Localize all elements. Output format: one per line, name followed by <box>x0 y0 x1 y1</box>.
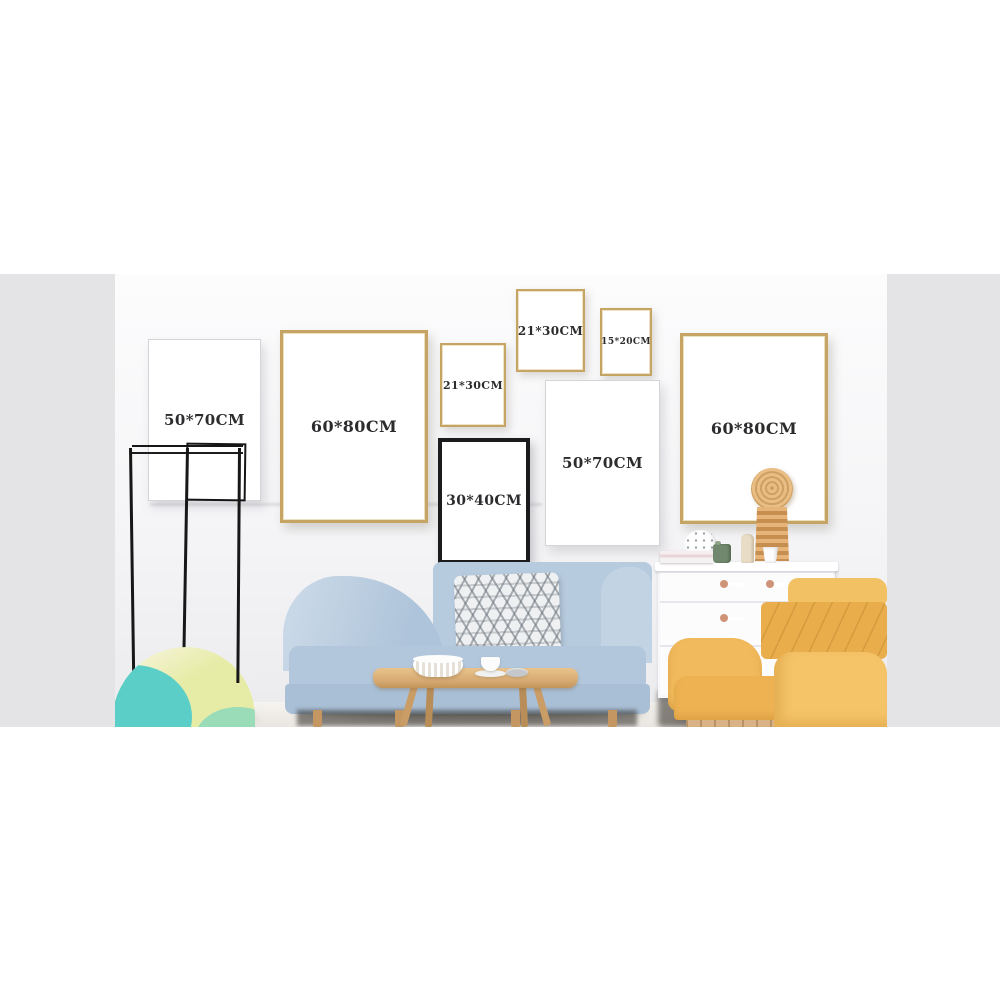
photo-side-band-left <box>0 274 115 727</box>
beige-vase <box>741 534 754 563</box>
table-leg <box>400 685 418 726</box>
table-leg <box>533 685 551 726</box>
frame-size-label: 21*30CM <box>518 324 583 338</box>
frame-size-label: 30*40CM <box>446 493 522 509</box>
wall-frame-50x70-center: 50*70CM <box>545 380 660 546</box>
table-leg <box>519 686 528 727</box>
frame-size-label: 60*80CM <box>711 419 797 438</box>
sofa-leg <box>313 710 322 727</box>
frame-size-label: 15*20CM <box>601 337 651 347</box>
wall-frame-15x20: 15*20CM <box>600 308 652 376</box>
wall-frame-60x80-left: 60*80CM <box>280 330 428 523</box>
living-room-photo: 50*70CM 60*80CM 21*30CM 30*40CM 21*30CM … <box>0 274 1000 727</box>
armchair-headrest <box>788 578 887 605</box>
dresser-top <box>655 562 838 571</box>
fluted-bowl <box>413 658 463 677</box>
frame-size-label: 21*30CM <box>443 379 503 392</box>
product-photo-page: 50*70CM 60*80CM 21*30CM 30*40CM 21*30CM … <box>0 0 1000 1000</box>
magazine-stack <box>660 551 714 563</box>
saucer <box>475 670 506 677</box>
frame-size-label: 60*80CM <box>311 417 397 436</box>
wall-frame-21x30-center: 21*30CM <box>516 289 585 372</box>
small-gray-dish <box>506 668 528 677</box>
armchair-ottoman <box>674 676 788 720</box>
table-leg <box>425 686 434 727</box>
armchair-backrest <box>761 602 887 659</box>
photo-side-band-right <box>887 274 1000 727</box>
green-plant-pot <box>713 544 731 563</box>
spiral-sculpture-top <box>751 468 793 510</box>
armchair-right-arm <box>774 652 887 727</box>
sofa-leg <box>608 710 617 727</box>
wall-frame-21x30-left: 21*30CM <box>440 343 506 427</box>
frame-size-label: 50*70CM <box>562 454 643 472</box>
frame-size-label: 50*70CM <box>164 411 245 429</box>
wall-frame-30x40: 30*40CM <box>438 438 530 564</box>
yellow-armchair <box>668 578 887 727</box>
coffee-table <box>373 668 578 727</box>
